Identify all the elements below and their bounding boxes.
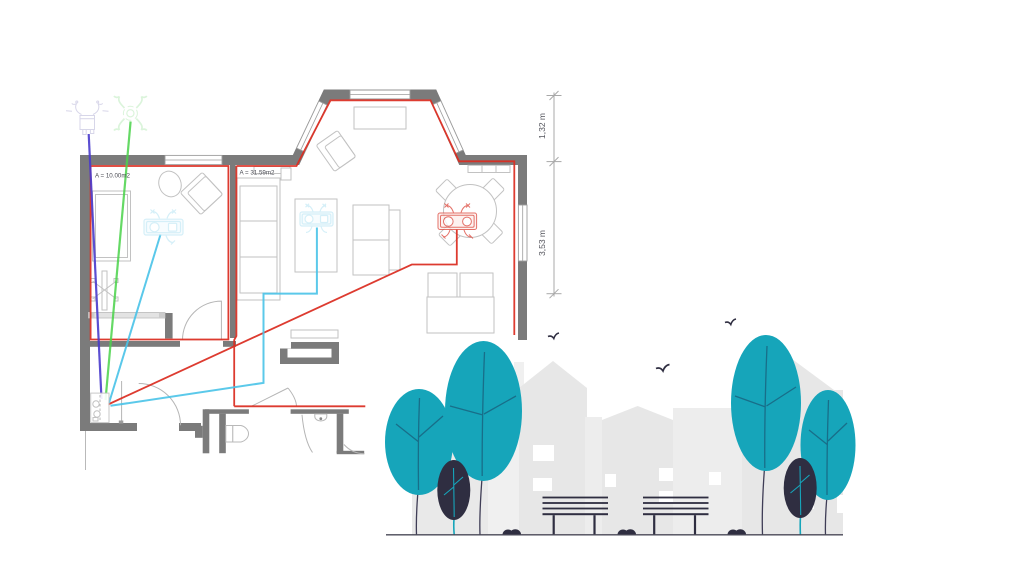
svg-text:3,53 m: 3,53 m: [537, 230, 547, 256]
svg-text:1,32 m: 1,32 m: [537, 113, 547, 139]
svg-text:A = 31.59m2: A = 31.59m2: [240, 170, 275, 177]
svg-text:A = 10.00m2: A = 10.00m2: [95, 173, 130, 180]
